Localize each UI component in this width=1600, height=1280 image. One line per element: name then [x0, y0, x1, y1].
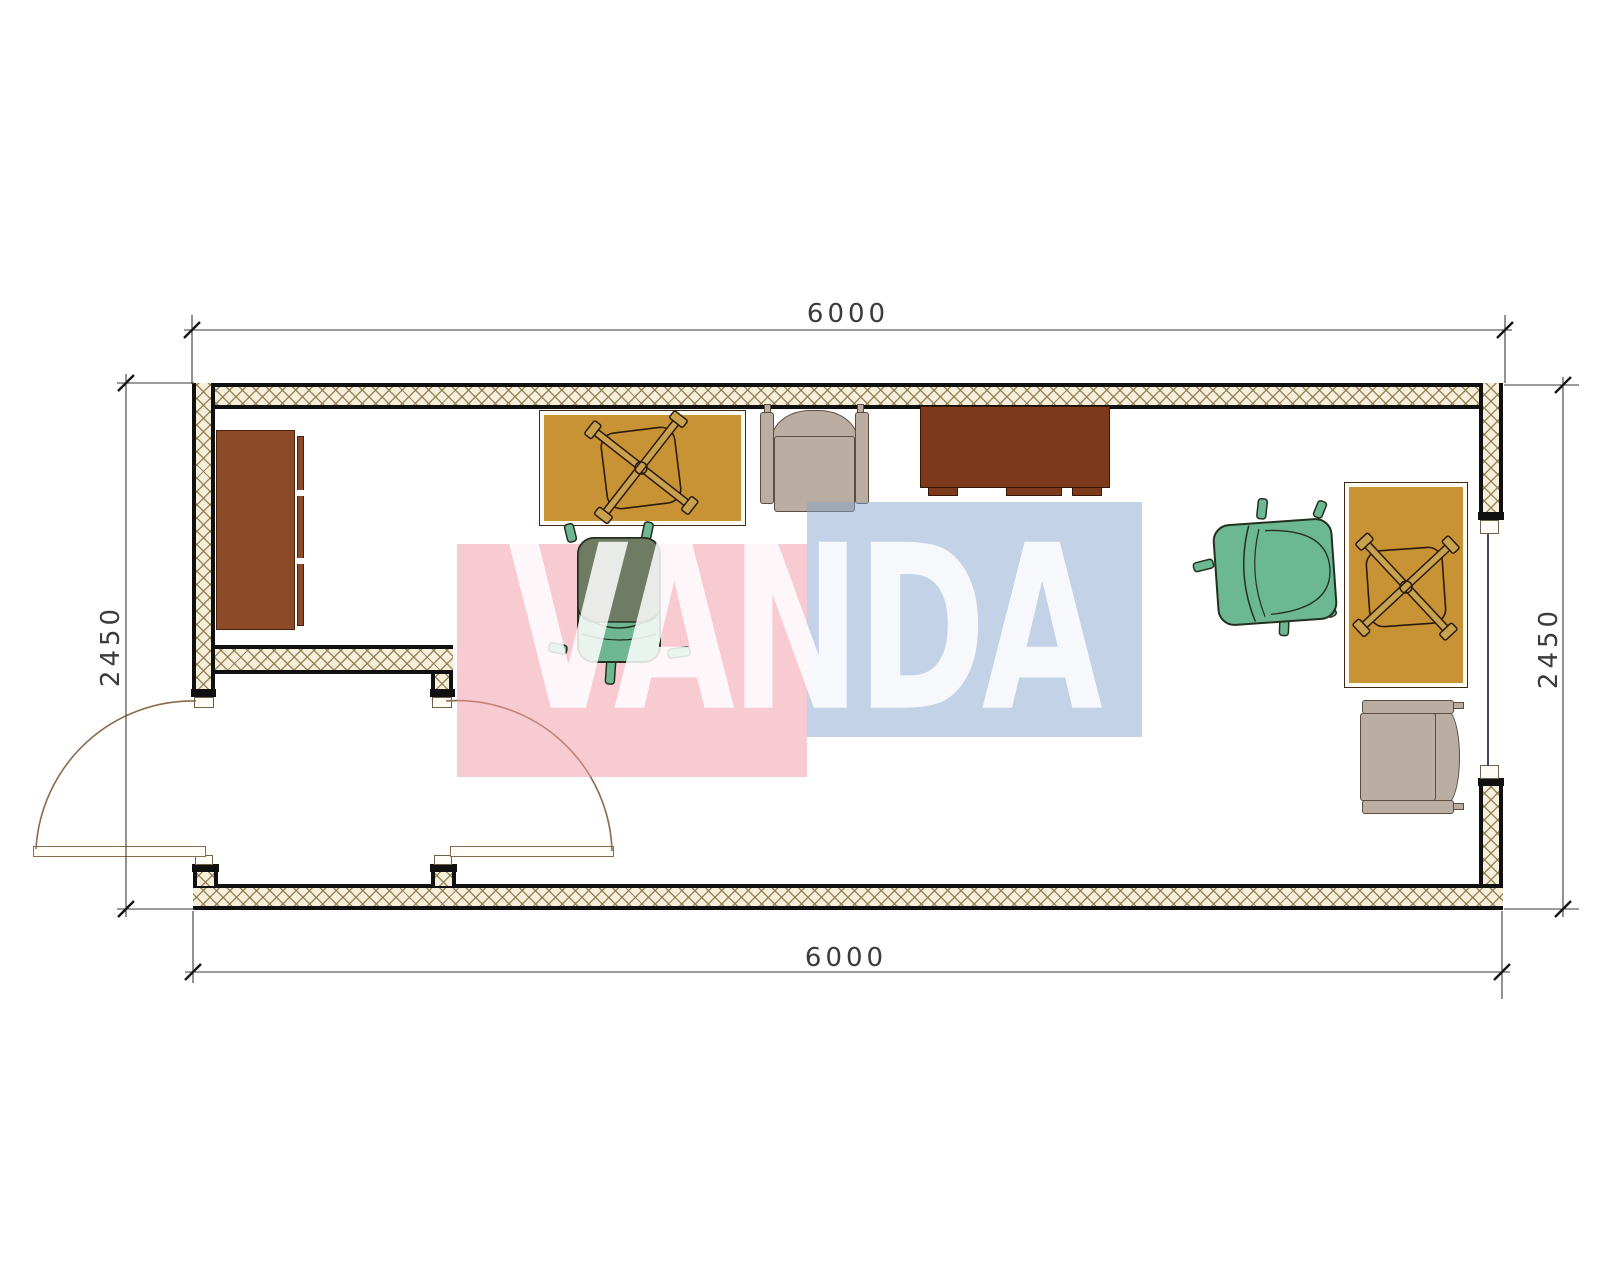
window-top-cap	[1478, 512, 1504, 520]
sideboard-foot	[1006, 487, 1062, 496]
floor-plan-canvas: 6000 6000 2450 2450	[0, 0, 1600, 1280]
exterior-door-swing-arc	[36, 701, 196, 849]
cabinet	[216, 430, 295, 630]
left-wall-end-cap	[191, 689, 216, 697]
right-stub-cap	[430, 864, 457, 872]
window-bottom-cap	[1478, 778, 1504, 786]
armchair-armrest	[760, 412, 774, 504]
dim-left-label: 2450	[96, 605, 126, 687]
sideboard	[920, 406, 1110, 488]
exterior-door-leaf	[33, 846, 206, 857]
bottom-wall	[193, 884, 1503, 910]
dim-bottom-label: 6000	[805, 943, 887, 973]
vestibule-partition-stub	[431, 674, 453, 689]
door-jamb	[432, 697, 452, 708]
sideboard-foot	[928, 487, 958, 496]
window-jamb	[1480, 520, 1499, 534]
armchair-bottom	[1354, 698, 1466, 816]
left-wall	[192, 383, 215, 689]
window-jamb	[1480, 765, 1499, 779]
cabinet-front-edge	[297, 436, 304, 626]
armchair-armrest	[855, 412, 869, 504]
watermark-text: VANDA	[508, 497, 1098, 762]
armchair-armrest	[1362, 700, 1454, 714]
office-chair-right	[1188, 494, 1338, 642]
cabinet-handle	[296, 490, 305, 496]
armchair-seat	[1360, 713, 1436, 801]
interior-door-leaf	[450, 846, 614, 857]
desk-right	[1344, 482, 1468, 688]
cabinet-handle	[296, 558, 305, 564]
door-jamb	[194, 697, 214, 708]
partition-stub-end-cap	[430, 689, 455, 697]
left-stub-cap	[192, 864, 219, 872]
vestibule-partition-wall	[215, 645, 453, 674]
armchair-armrest	[1362, 800, 1454, 814]
dim-right-label: 2450	[1534, 607, 1564, 689]
bottom-right-door-stub	[431, 872, 456, 886]
bottom-left-door-stub	[193, 872, 218, 886]
right-wall-lower	[1479, 786, 1503, 884]
dim-top-label: 6000	[807, 299, 889, 329]
sideboard-foot	[1072, 487, 1102, 496]
right-wall-upper	[1479, 383, 1503, 512]
